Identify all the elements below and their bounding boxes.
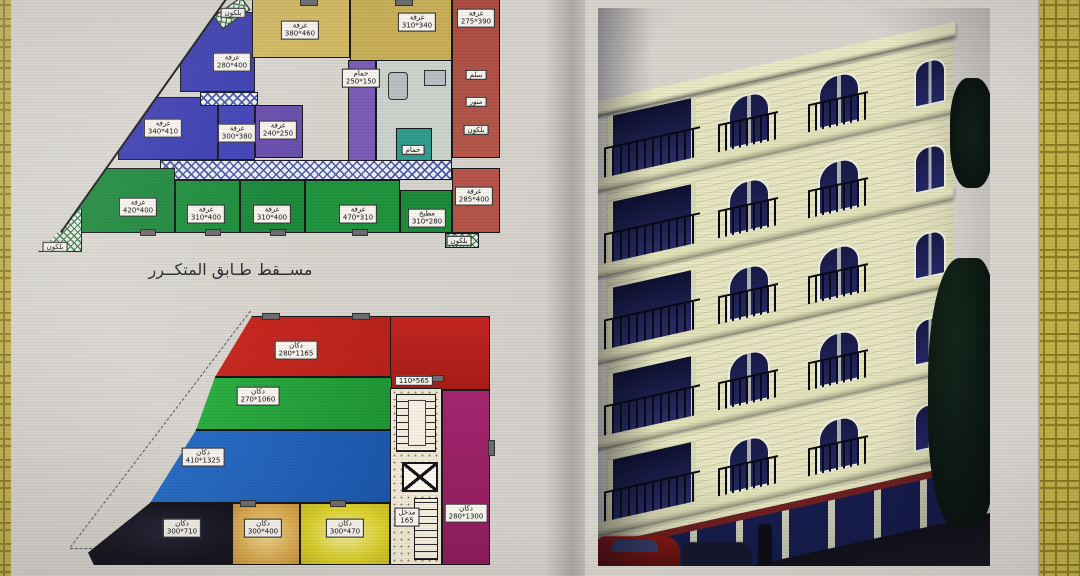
car-red-windshield xyxy=(612,540,658,552)
bath-label: حمام xyxy=(402,145,425,155)
stairs-landing xyxy=(408,400,426,446)
room-label: حمام150*250 xyxy=(342,69,380,88)
balcony-label: بلكون xyxy=(464,125,489,135)
wall-mark xyxy=(352,313,370,320)
entrance-label: مدخل165 xyxy=(394,508,419,527)
wall-mark xyxy=(270,229,286,236)
arched-window-narrow xyxy=(914,228,946,281)
shop-label: دكان1165*280 xyxy=(275,341,318,360)
shop-label: دكان1300*280 xyxy=(445,504,488,523)
shop-label: دكان710*300 xyxy=(163,519,201,538)
kitchen-label: مطبخ280*310 xyxy=(408,209,446,228)
room-label: غرفة340*310 xyxy=(398,13,436,32)
shop-label: دكان1060*270 xyxy=(237,387,280,406)
arched-window-narrow xyxy=(914,56,946,109)
room-label: غرفة410*340 xyxy=(144,119,182,138)
room-label: غرفة250*240 xyxy=(259,121,297,140)
rendering-photo xyxy=(585,0,1038,576)
stairs-label: سلم xyxy=(466,70,487,80)
shop-black xyxy=(88,503,232,565)
shop-blue xyxy=(150,430,392,503)
wall-mark xyxy=(300,0,318,6)
room-label: غرفة380*300 xyxy=(218,124,256,143)
wall-mark xyxy=(240,500,256,507)
room-label: غرفة400*420 xyxy=(119,198,157,217)
typical-plan-caption: مســقط طـابق المتكــرر xyxy=(128,260,333,279)
room-label: غرفة400*285 xyxy=(455,187,493,206)
wc-fixture xyxy=(424,70,446,86)
ground-floor-plan: دكان1165*280 565*110 دكان1060*270 دكان13… xyxy=(0,300,560,576)
wc-fixture xyxy=(388,72,408,100)
wall-mark xyxy=(140,229,156,236)
wall-mark xyxy=(488,440,495,456)
balcony-label: بلكون xyxy=(221,8,246,18)
shop-magenta xyxy=(442,390,490,565)
wall-mark xyxy=(395,0,413,6)
car-dark xyxy=(682,542,752,566)
room-label: غرفة460*380 xyxy=(281,21,319,40)
room-label: غرفة400*310 xyxy=(253,205,291,224)
room-label: غرفة390*275 xyxy=(457,9,495,28)
balcony-label: بلكون xyxy=(447,236,472,246)
wall-mark xyxy=(205,229,221,236)
corridor-hatch-upper xyxy=(200,92,258,106)
shop-label: دكان400*300 xyxy=(244,519,282,538)
shop-green xyxy=(196,377,392,430)
shop-label: دكان470*300 xyxy=(326,519,364,538)
room-label: غرفة400*280 xyxy=(213,53,251,72)
room-label: غرفة310*470 xyxy=(339,205,377,224)
lightwell-label: منور xyxy=(466,97,487,107)
pedestrian-silhouette xyxy=(758,524,772,566)
shop-label: دكان1325*410 xyxy=(182,448,225,467)
wall-mark xyxy=(330,500,346,507)
elevator xyxy=(402,462,438,492)
photographed-architectural-sheet: غرفة400*280 غرفة460*380 غرفة340*310 غرفة… xyxy=(0,0,1080,576)
tree-right xyxy=(928,258,990,528)
building-facade xyxy=(606,22,954,566)
corner-dims-label: 565*110 xyxy=(395,376,433,386)
arched-window-narrow xyxy=(914,142,946,195)
tree-top-right xyxy=(950,78,990,188)
property-dashed-line xyxy=(70,548,92,549)
room-label: غرفة400*310 xyxy=(187,205,225,224)
typical-floor-plan: غرفة400*280 غرفة460*380 غرفة340*310 غرفة… xyxy=(0,0,560,300)
gold-wallpaper-right xyxy=(1040,0,1080,576)
balcony-label: بلكون xyxy=(43,242,68,252)
building-rendering xyxy=(598,8,990,566)
corridor-hatch-main xyxy=(160,160,452,180)
wall-mark xyxy=(262,313,280,320)
wall-mark xyxy=(352,229,368,236)
